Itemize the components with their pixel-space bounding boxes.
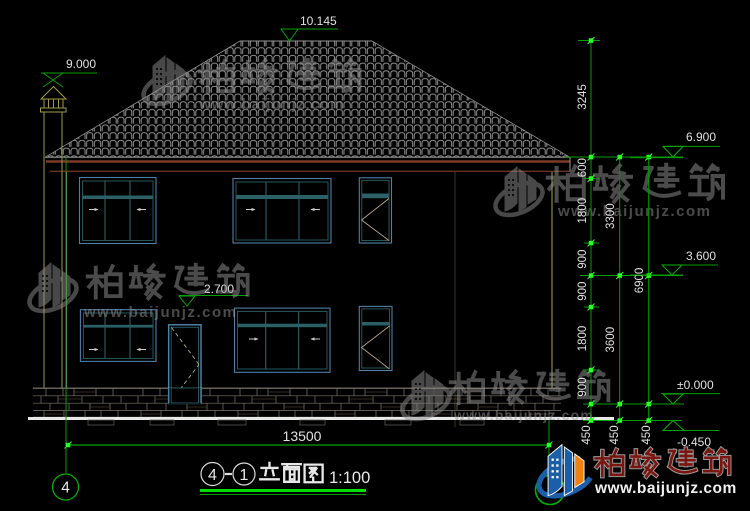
svg-text:1800: 1800 [577,198,589,224]
svg-text:3245: 3245 [577,84,589,110]
svg-text:450: 450 [581,425,593,444]
svg-text:4: 4 [208,467,217,484]
svg-text:www.baijunjz.com: www.baijunjz.com [198,96,344,113]
svg-text:3300: 3300 [605,203,617,229]
svg-text:6.900: 6.900 [686,130,716,144]
svg-text:600: 600 [577,158,589,177]
svg-text:450: 450 [641,425,653,444]
svg-text:www.baijunjz.com: www.baijunjz.com [594,480,737,497]
svg-text:6900: 6900 [634,268,646,294]
svg-text:www.baijunjz.com: www.baijunjz.com [83,304,237,321]
svg-text:450: 450 [609,425,621,444]
svg-text:9.000: 9.000 [66,57,96,71]
svg-text:3600: 3600 [605,327,617,353]
svg-text:4: 4 [61,480,70,497]
svg-text:1800: 1800 [577,326,589,352]
svg-text:10.145: 10.145 [300,14,337,28]
svg-text:3.600: 3.600 [686,249,716,263]
svg-text:1: 1 [240,467,249,484]
svg-text:-0.450: -0.450 [677,435,711,449]
svg-text:900: 900 [577,250,589,269]
svg-text:±0.000: ±0.000 [677,378,714,392]
svg-text:www.baijunjz.com: www.baijunjz.com [453,407,594,423]
svg-text:13500: 13500 [283,428,322,444]
svg-text:1:100: 1:100 [329,469,370,487]
svg-text:900: 900 [577,377,589,396]
svg-text:900: 900 [577,282,589,301]
